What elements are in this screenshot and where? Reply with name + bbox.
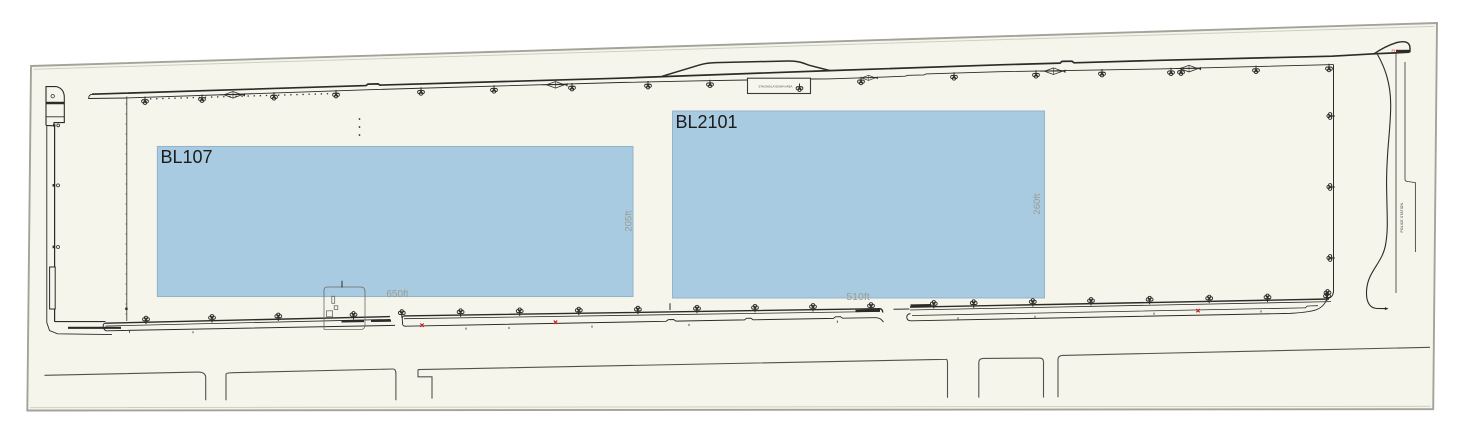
svg-text:STAGING/LAYDOWN AREA: STAGING/LAYDOWN AREA — [759, 84, 793, 88]
svg-text:650ft: 650ft — [386, 289, 408, 300]
svg-text:510ft: 510ft — [846, 291, 869, 303]
svg-text:BL2101: BL2101 — [676, 112, 738, 132]
svg-text:BL107: BL107 — [161, 147, 213, 167]
svg-text:205ft: 205ft — [624, 210, 635, 231]
svg-text:POLICE STATION: POLICE STATION — [1400, 202, 1404, 232]
svg-text:260ft: 260ft — [1032, 193, 1043, 214]
svg-text:FH2: FH2 — [1392, 48, 1400, 53]
